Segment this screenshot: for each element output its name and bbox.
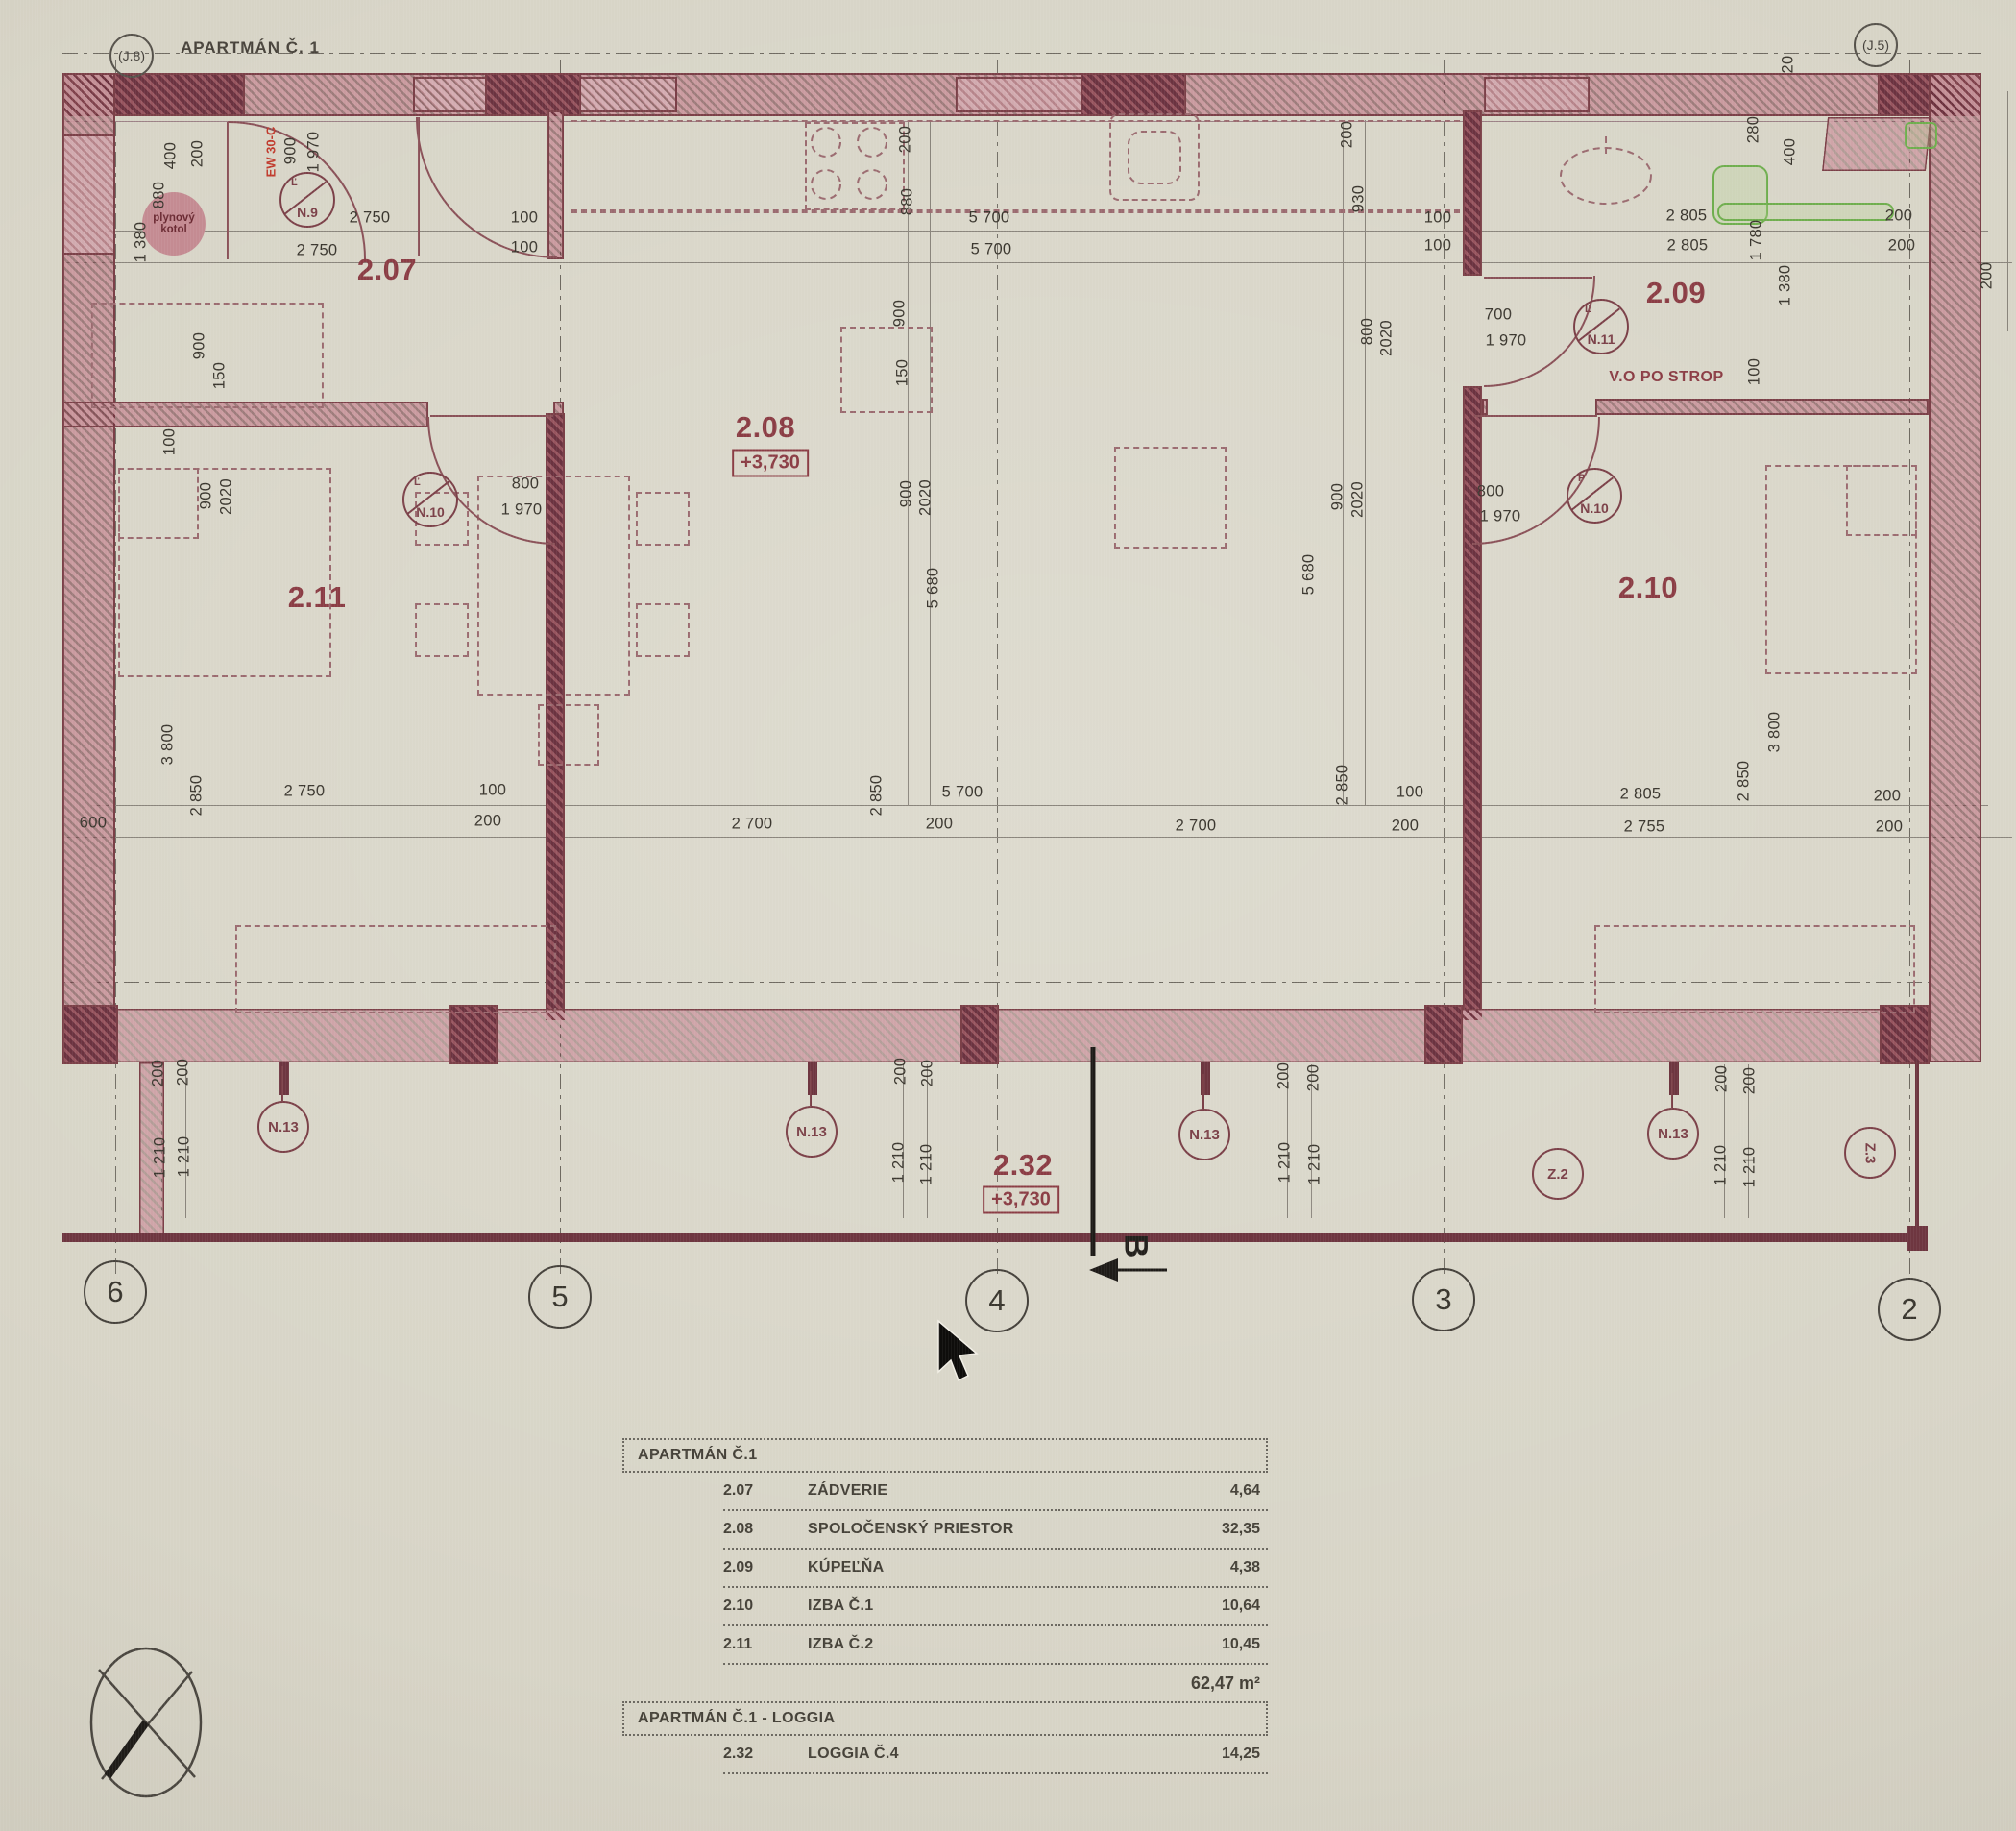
dim-label: 2 750 [284, 783, 326, 801]
legend-total-area: 62,47 m² [723, 1665, 1268, 1701]
legend-room-id: 2.09 [723, 1559, 808, 1576]
dim-label: 200 [175, 1059, 193, 1086]
dim-label: 2020 [1378, 320, 1397, 356]
dim-label: 100 [479, 782, 506, 800]
legend-room-id: 2.10 [723, 1598, 808, 1615]
legend-room-area: 32,35 [1145, 1521, 1268, 1538]
fd [1128, 131, 1181, 184]
dim-label: 2020 [917, 479, 935, 516]
grid-axis-bubble-5: 5 [528, 1265, 592, 1329]
dim-label: 1 210 [1306, 1144, 1324, 1185]
dim-label: 200 [1876, 818, 1903, 837]
element-marker-Z3: Z.3 [1844, 1127, 1896, 1179]
reference-marker-J5: (J.5) [1854, 23, 1898, 67]
dim-label: 200 [892, 1058, 911, 1085]
mouse-cursor [938, 1321, 977, 1380]
graphic [108, 1722, 146, 1776]
dim-label: 100 [1424, 237, 1451, 256]
edge [1915, 1062, 1919, 1235]
north-symbol [91, 1648, 201, 1796]
dim-label: 2 850 [1334, 765, 1352, 806]
vo-po-strop-label: V.O PO STROP [1609, 369, 1723, 386]
dim-label: 1 210 [1276, 1142, 1295, 1184]
dim-label: 2 850 [1736, 761, 1754, 802]
door-marker-N11: ĽN.11 [1573, 299, 1629, 354]
cooktop [805, 122, 905, 210]
pillow-210 [1846, 465, 1917, 536]
dim-label: 5 680 [925, 568, 943, 609]
kitchen-counter [571, 120, 1460, 213]
w [485, 73, 581, 116]
dim-label: 1 380 [1777, 265, 1795, 306]
dim-label: 200 [1392, 818, 1419, 836]
dim-label: 1 380 [133, 222, 151, 263]
dim-label: 2 850 [188, 775, 206, 817]
room-label-208: 2.08 [736, 410, 795, 445]
legend-room-name: ZÁDVERIE [808, 1482, 1145, 1500]
dim-label: 200 [1339, 121, 1357, 148]
green-bar [1717, 203, 1894, 221]
section-label: B [1117, 1234, 1154, 1258]
dim-label: 600 [80, 815, 107, 833]
dim-label: 2 850 [868, 775, 887, 817]
dim-label: 400 [1782, 138, 1800, 165]
floor-plan-photo: APARTMÁN Č. 1 V.O PO STROP EW 30-C plyno… [0, 0, 2016, 1831]
element-marker-Z2: Z.2 [1532, 1148, 1584, 1200]
dim-label: 200 [897, 126, 915, 153]
dim-label: 100 [511, 209, 538, 228]
legend-room-id: 2.08 [723, 1521, 808, 1538]
elevation-label: +3,730 [983, 1186, 1059, 1214]
door-marker-id: N.10 [404, 504, 456, 520]
dim-label: 800 [1359, 318, 1377, 345]
dim-label: 100 [1424, 209, 1451, 228]
dim-label: 200 [189, 140, 207, 167]
graphic [1089, 1258, 1118, 1282]
dim-label: 880 [151, 182, 169, 208]
dim-label: 2 700 [732, 816, 773, 834]
element-marker-N13: N.13 [257, 1101, 309, 1153]
graphic [102, 1672, 192, 1779]
element-marker-id: N.13 [1658, 1126, 1688, 1142]
graphic: plynový [153, 212, 194, 224]
element-marker-N13: N.13 [1178, 1109, 1230, 1160]
legend-section-header: APARTMÁN Č.1 [622, 1438, 1268, 1473]
legend-room-name: IZBA Č.2 [808, 1636, 1145, 1653]
dim-label: 5 700 [942, 784, 984, 802]
kitchen-island [840, 327, 933, 413]
vl [2007, 91, 2008, 331]
door-hinge-letter: Ľ [1585, 304, 1591, 315]
dim-label: 2 805 [1620, 786, 1662, 804]
dim-label: 1 970 [501, 501, 543, 520]
grid-axis-bubble-2: 2 [1878, 1278, 1941, 1341]
dim-label: 150 [211, 362, 230, 389]
hl [62, 262, 2012, 263]
door-marker-id: N.9 [281, 205, 333, 220]
dim-label: 100 [511, 239, 538, 257]
wardrobe-211 [235, 925, 556, 1013]
legend-row: 2.09KÚPEĽŇA4,38 [723, 1550, 1268, 1588]
dim-label: 100 [1746, 358, 1764, 385]
washbasin [1561, 148, 1651, 204]
w [449, 1005, 498, 1064]
dim-label: 900 [891, 300, 910, 327]
legend-room-id: 2.32 [723, 1746, 808, 1763]
w [1424, 1005, 1463, 1064]
dim-label: 200 [1741, 1067, 1760, 1094]
element-marker-N13: N.13 [1647, 1108, 1699, 1160]
legend-row: 2.08SPOLOČENSKÝ PRIESTOR32,35 [723, 1511, 1268, 1550]
legend-room-area: 10,45 [1145, 1636, 1268, 1653]
dim-label: 900 [282, 137, 301, 164]
dim-label: 3 800 [1766, 712, 1785, 753]
legend-room-name: IZBA Č.1 [808, 1598, 1145, 1615]
dim-label: 900 [1329, 483, 1348, 510]
legend-section-header: APARTMÁN Č.1 - LOGGIA [622, 1701, 1268, 1736]
vl [1365, 120, 1366, 805]
graphic: kotol [160, 224, 186, 235]
dim-label: 200 [1885, 208, 1912, 226]
dim-label: 2 805 [1667, 237, 1709, 256]
w [956, 77, 1090, 112]
door-hinge-letter: P [1578, 473, 1585, 484]
w [1880, 1005, 1930, 1064]
dim-label: 200 [919, 1060, 937, 1086]
dim-label: 5 700 [969, 209, 1010, 228]
dim-label: 1 210 [918, 1144, 936, 1185]
door-marker-id: N.11 [1575, 331, 1627, 347]
legend-room-name: KÚPEĽŇA [808, 1559, 1145, 1576]
legend-room-id: 2.07 [723, 1482, 808, 1500]
hl [91, 805, 1988, 806]
hl [91, 231, 1988, 232]
dim-label: 100 [161, 428, 180, 455]
legend-room-id: 2.11 [723, 1636, 808, 1653]
dim-label: 200 [1888, 237, 1915, 256]
dim-label: 1 210 [152, 1137, 170, 1179]
element-marker-id: Z.2 [1547, 1166, 1568, 1183]
dim-label: 2020 [218, 478, 236, 515]
dim-label: 2 700 [1176, 818, 1217, 836]
legend-row: 2.10IZBA Č.110,64 [723, 1588, 1268, 1626]
dim-label: 1 970 [1480, 508, 1521, 526]
door-hinge-letter: Ľ [414, 476, 421, 488]
dim-label: 5 700 [971, 241, 1012, 259]
legend-room-area: 4,64 [1145, 1482, 1268, 1500]
dim-label: 150 [894, 359, 912, 386]
green-unit [1905, 122, 1937, 149]
dim-label: 700 [1485, 306, 1512, 325]
dim-label: 280 [1745, 116, 1763, 143]
dim-label: 20 [1780, 56, 1798, 74]
dim-label: 880 [899, 188, 917, 215]
legend-rows: 2.32LOGGIA Č.414,25 [723, 1736, 1268, 1774]
dim-label: 1 970 [1486, 332, 1527, 351]
door-arc-n9 [417, 117, 557, 257]
door-marker-N10: ĽN.10 [402, 472, 458, 527]
wall-right [1929, 73, 1981, 1062]
room-schedule-table: APARTMÁN Č.12.07ZÁDVERIE4,642.08SPOLOČEN… [622, 1438, 1268, 1774]
dim-label: 200 [1305, 1064, 1324, 1091]
apartment-title: APARTMÁN Č. 1 [181, 38, 320, 58]
hl [62, 837, 2012, 838]
dim-label: 1 780 [1748, 220, 1766, 261]
door-hinge-letter: Ľ [291, 177, 298, 188]
fire-rating-label: EW 30-C [264, 127, 279, 178]
dim-label: 200 [1979, 262, 1997, 289]
dim-label: 200 [150, 1060, 168, 1086]
graphic [99, 1670, 195, 1777]
wall-207-208 [547, 110, 564, 259]
elevation-label: +3,730 [732, 450, 809, 477]
element-marker-id: N.13 [1189, 1127, 1220, 1143]
door-marker-N10: PN.10 [1567, 468, 1622, 524]
chair [636, 603, 690, 657]
dim-label: 930 [1350, 185, 1369, 212]
dim-label: 400 [162, 142, 181, 169]
grid-axis-bubble-6: 6 [84, 1260, 147, 1324]
wardrobe-210 [1594, 925, 1915, 1013]
room-label-207: 2.07 [357, 253, 417, 287]
chair [538, 704, 599, 766]
graphic [91, 1648, 201, 1796]
legend-row: 2.32LOGGIA Č.414,25 [723, 1736, 1268, 1774]
dim-label: 1 210 [890, 1142, 909, 1184]
boundary-line-top [62, 53, 1981, 54]
dim-label: 3 800 [159, 724, 178, 766]
dim-label: 200 [1275, 1062, 1294, 1089]
w [1484, 77, 1590, 112]
element-marker-id: Z.3 [1862, 1142, 1879, 1163]
dim-label: 2020 [1349, 481, 1368, 518]
dim-label: 2 750 [297, 242, 338, 260]
w [1482, 399, 1488, 415]
wall-208-210 [1463, 386, 1482, 1020]
reference-marker-J8: (J.8) [109, 34, 154, 78]
dim-label: 1 210 [176, 1136, 194, 1178]
dim-label: 2 750 [350, 209, 391, 228]
legend-total-value: 62,47 m² [1191, 1673, 1268, 1694]
dim-label: 200 [926, 816, 953, 834]
vl [930, 120, 931, 805]
dim-label: 1 210 [1712, 1145, 1731, 1186]
dim-label: 1 970 [305, 132, 324, 173]
legend-room-area: 14,25 [1145, 1746, 1268, 1763]
grid-axis-bubble-4: 4 [965, 1269, 1029, 1332]
loggia-floor-edge [62, 1233, 1928, 1242]
dim-label: 200 [1874, 788, 1901, 806]
dim-label: 800 [512, 476, 539, 494]
legend-room-name: LOGGIA Č.4 [808, 1746, 1145, 1763]
dim-label: 5 680 [1300, 554, 1319, 596]
element-marker-id: N.13 [796, 1124, 827, 1140]
vl [927, 1064, 928, 1218]
w [1081, 73, 1186, 116]
vl [908, 120, 909, 805]
legend-row: 2.11IZBA Č.210,45 [723, 1626, 1268, 1665]
sideboard [1114, 447, 1227, 549]
wall-209-210 [1595, 399, 1929, 415]
dim-label: 900 [198, 482, 216, 509]
w [62, 1005, 118, 1064]
dim-label: 2 755 [1624, 818, 1665, 837]
dim-label: 800 [1477, 483, 1504, 501]
room-label-232: 2.32 [993, 1148, 1053, 1183]
w [62, 134, 115, 255]
room-label-209: 2.09 [1646, 276, 1706, 310]
legend-room-name: SPOLOČENSKÝ PRIESTOR [808, 1521, 1145, 1538]
legend-rows: 2.07ZÁDVERIE4,642.08SPOLOČENSKÝ PRIESTOR… [723, 1473, 1268, 1701]
dim-label: 900 [898, 480, 916, 507]
door-marker-id: N.10 [1568, 500, 1620, 516]
room-label-211: 2.11 [288, 580, 347, 615]
chair [415, 603, 469, 657]
room-label-210: 2.10 [1618, 571, 1678, 605]
vl [1343, 120, 1344, 805]
pillow-211 [118, 468, 199, 539]
legend-room-area: 10,64 [1145, 1598, 1268, 1615]
wall-208-209 [1463, 110, 1482, 276]
dim-label: 1 210 [1741, 1147, 1760, 1188]
dim-label: 200 [474, 813, 501, 831]
w [960, 1005, 999, 1064]
dim-label: 100 [1397, 784, 1423, 802]
dim-label: 2 805 [1666, 208, 1708, 226]
axis-line-6 [115, 60, 116, 1278]
door-marker-N9: ĽN.9 [279, 172, 335, 228]
chair [636, 492, 690, 546]
dim-label: 900 [191, 332, 209, 359]
legend-row: 2.07ZÁDVERIE4,64 [723, 1473, 1268, 1511]
element-marker-N13: N.13 [786, 1106, 838, 1158]
dim-label: 200 [1713, 1065, 1732, 1092]
legend-room-area: 4,38 [1145, 1559, 1268, 1576]
element-marker-id: N.13 [268, 1119, 299, 1135]
grid-axis-bubble-3: 3 [1412, 1268, 1475, 1331]
